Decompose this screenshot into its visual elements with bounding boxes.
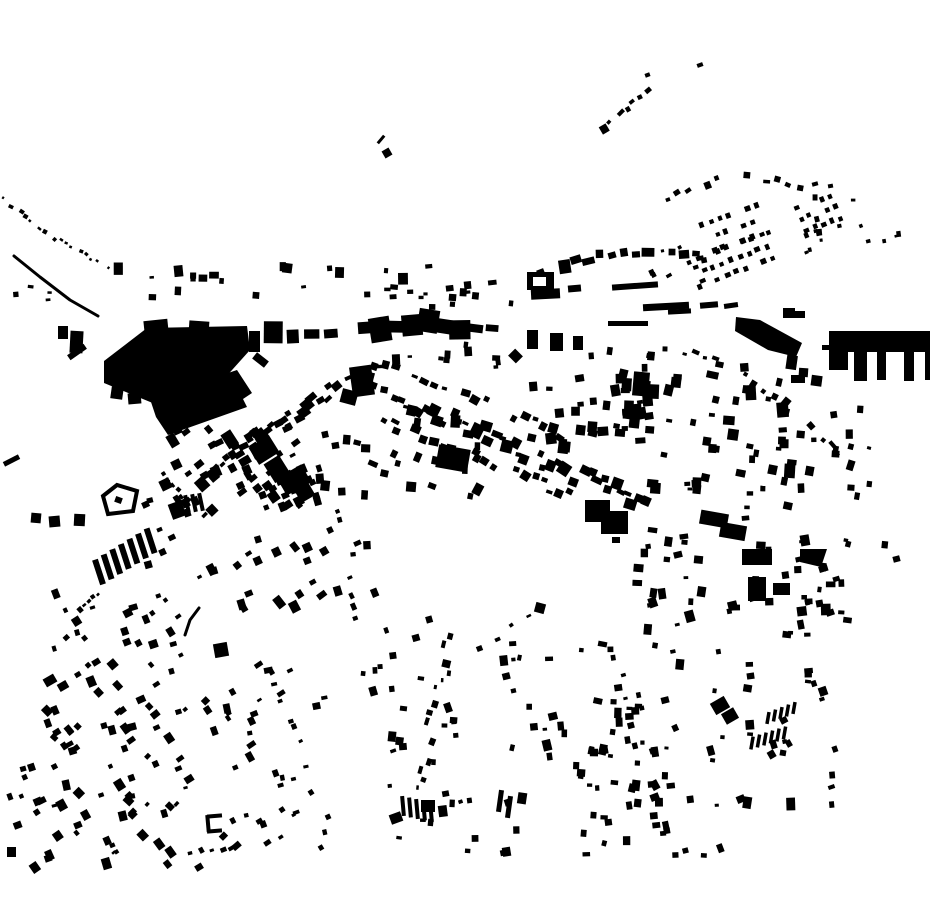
map-page <box>0 0 930 924</box>
figure-ground-map <box>0 0 930 924</box>
